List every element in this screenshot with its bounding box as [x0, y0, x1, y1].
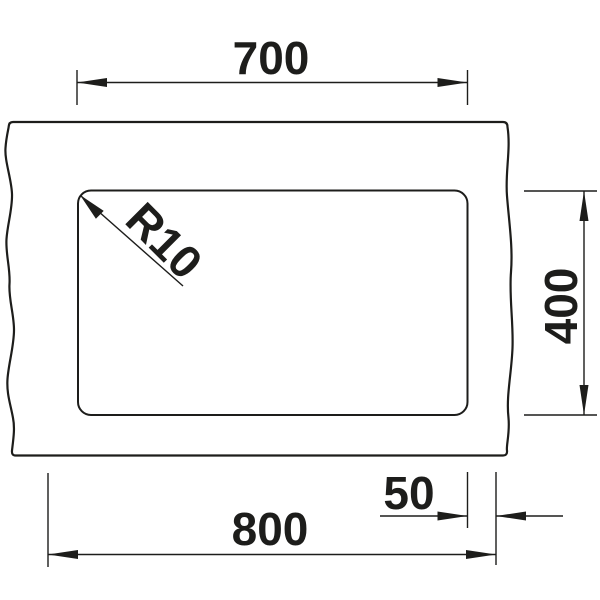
- arrowhead-down-icon: [580, 385, 589, 415]
- radius-callout: R10: [80, 192, 213, 288]
- arrowhead-up-icon: [580, 191, 589, 221]
- countertop-outline: [5, 122, 512, 456]
- dim-label-right-height: 400: [535, 268, 587, 345]
- drawing-canvas: 700 400 50 800: [0, 0, 600, 600]
- dim-label-right-offset: 50: [383, 467, 434, 519]
- sink-installation-drawing: 700 400 50 800: [0, 0, 600, 600]
- dim-label-corner-radius: R10: [116, 192, 212, 288]
- dim-label-top-width: 700: [233, 32, 310, 84]
- dimension-right-height: 400: [524, 191, 597, 415]
- arrowhead-right-icon: [438, 78, 468, 87]
- arrowhead-left-icon: [48, 550, 78, 559]
- arrowhead-left-icon: [77, 78, 107, 87]
- arrowhead-right-icon: [438, 512, 468, 521]
- dimension-top-width: 700: [77, 32, 468, 105]
- dimension-right-offset: 50: [380, 467, 563, 528]
- arrowhead-right-icon: [466, 550, 496, 559]
- dim-label-bottom-width: 800: [232, 503, 309, 555]
- arrowhead-left-icon: [496, 512, 526, 521]
- radius-arrowhead-icon: [80, 195, 104, 219]
